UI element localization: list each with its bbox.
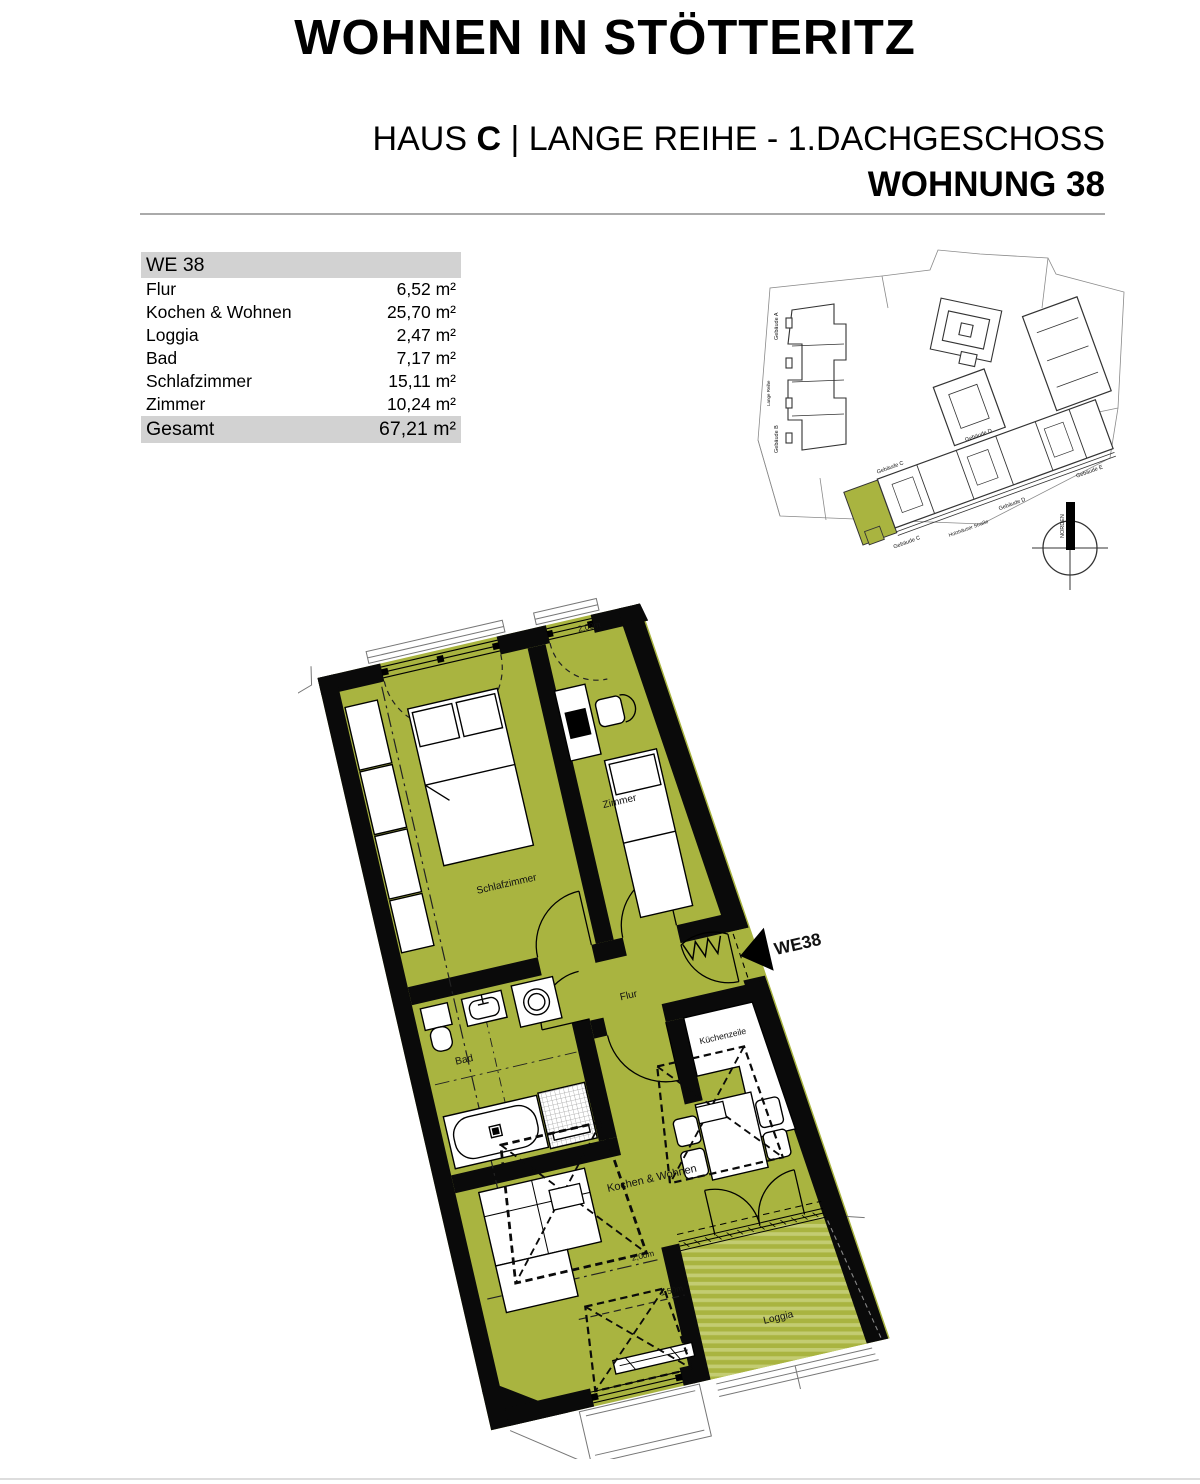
subtitle-rest: | LANGE REIHE - 1.DACHGESCHOSS bbox=[501, 120, 1105, 158]
site-label: Gebäude E bbox=[1076, 464, 1105, 479]
row-label: Bad bbox=[146, 347, 177, 370]
site-label: Gebäude A bbox=[774, 312, 780, 340]
row-label: Schlafzimmer bbox=[146, 370, 252, 393]
area-table-header: WE 38 bbox=[141, 252, 461, 278]
total-label: Gesamt bbox=[146, 416, 214, 443]
washing-machine bbox=[511, 977, 562, 1028]
row-label: Kochen & Wohnen bbox=[146, 301, 292, 324]
site-label: Gebäude B bbox=[774, 425, 780, 453]
row-value: 2,47 m² bbox=[397, 324, 456, 347]
site-plan: Gebäude C Gebäude D Gebäude C Gebäude D … bbox=[730, 248, 1130, 598]
unit-label: WE38 bbox=[772, 929, 823, 959]
page-title: WOHNEN IN STÖTTERITZ bbox=[140, 10, 1070, 66]
row-label: Loggia bbox=[146, 324, 199, 347]
subtitle-house-letter: C bbox=[476, 120, 501, 158]
subtitle-apartment: WOHNUNG 38 bbox=[140, 165, 1105, 205]
table-row: Kochen & Wohnen25,70 m² bbox=[141, 301, 461, 324]
subtitle: HAUS C | LANGE REIHE - 1.DACHGESCHOSS bbox=[140, 118, 1105, 160]
total-value: 67,21 m² bbox=[379, 416, 456, 443]
north-needle-icon bbox=[1066, 502, 1075, 550]
row-value: 6,52 m² bbox=[397, 278, 456, 301]
site-label: Gebäude D bbox=[998, 497, 1027, 512]
site-label: Lange Reihe bbox=[766, 380, 771, 406]
table-row: Schlafzimmer15,11 m² bbox=[141, 370, 461, 393]
table-total-row: Gesamt67,21 m² bbox=[141, 416, 461, 443]
area-table: WE 38 Flur6,52 m² Kochen & Wohnen25,70 m… bbox=[141, 252, 461, 443]
row-label: Flur bbox=[146, 278, 176, 301]
row-label: Zimmer bbox=[146, 393, 205, 416]
header-divider bbox=[140, 213, 1105, 215]
site-building-top bbox=[929, 298, 1002, 370]
table-row: Zimmer10,24 m² bbox=[141, 393, 461, 416]
row-value: 10,24 m² bbox=[387, 393, 456, 416]
compass-label: NORDEN bbox=[1060, 514, 1066, 538]
table-row: Bad7,17 m² bbox=[141, 347, 461, 370]
table-row: Flur6,52 m² bbox=[141, 278, 461, 301]
site-building-left bbox=[786, 304, 846, 450]
row-value: 7,17 m² bbox=[397, 347, 456, 370]
row-value: 25,70 m² bbox=[387, 301, 456, 324]
floor-plan: 2,00m 2,00m 2,00m 1,50m bbox=[298, 585, 923, 1459]
site-street-label: Holzhäuser Straße bbox=[948, 519, 989, 539]
site-vertical-labels: Gebäude A Gebäude B Lange Reihe bbox=[766, 312, 780, 453]
subtitle-prefix: HAUS bbox=[373, 120, 477, 158]
page-bottom-divider bbox=[0, 1478, 1200, 1480]
site-label: Gebäude C bbox=[893, 535, 922, 550]
compass-icon: NORDEN bbox=[1032, 502, 1108, 590]
row-value: 15,11 m² bbox=[388, 370, 456, 393]
table-row: Loggia2,47 m² bbox=[141, 324, 461, 347]
floorplan-sheet: { "header": { "title": "WOHNEN IN STÖTTE… bbox=[0, 0, 1200, 1484]
